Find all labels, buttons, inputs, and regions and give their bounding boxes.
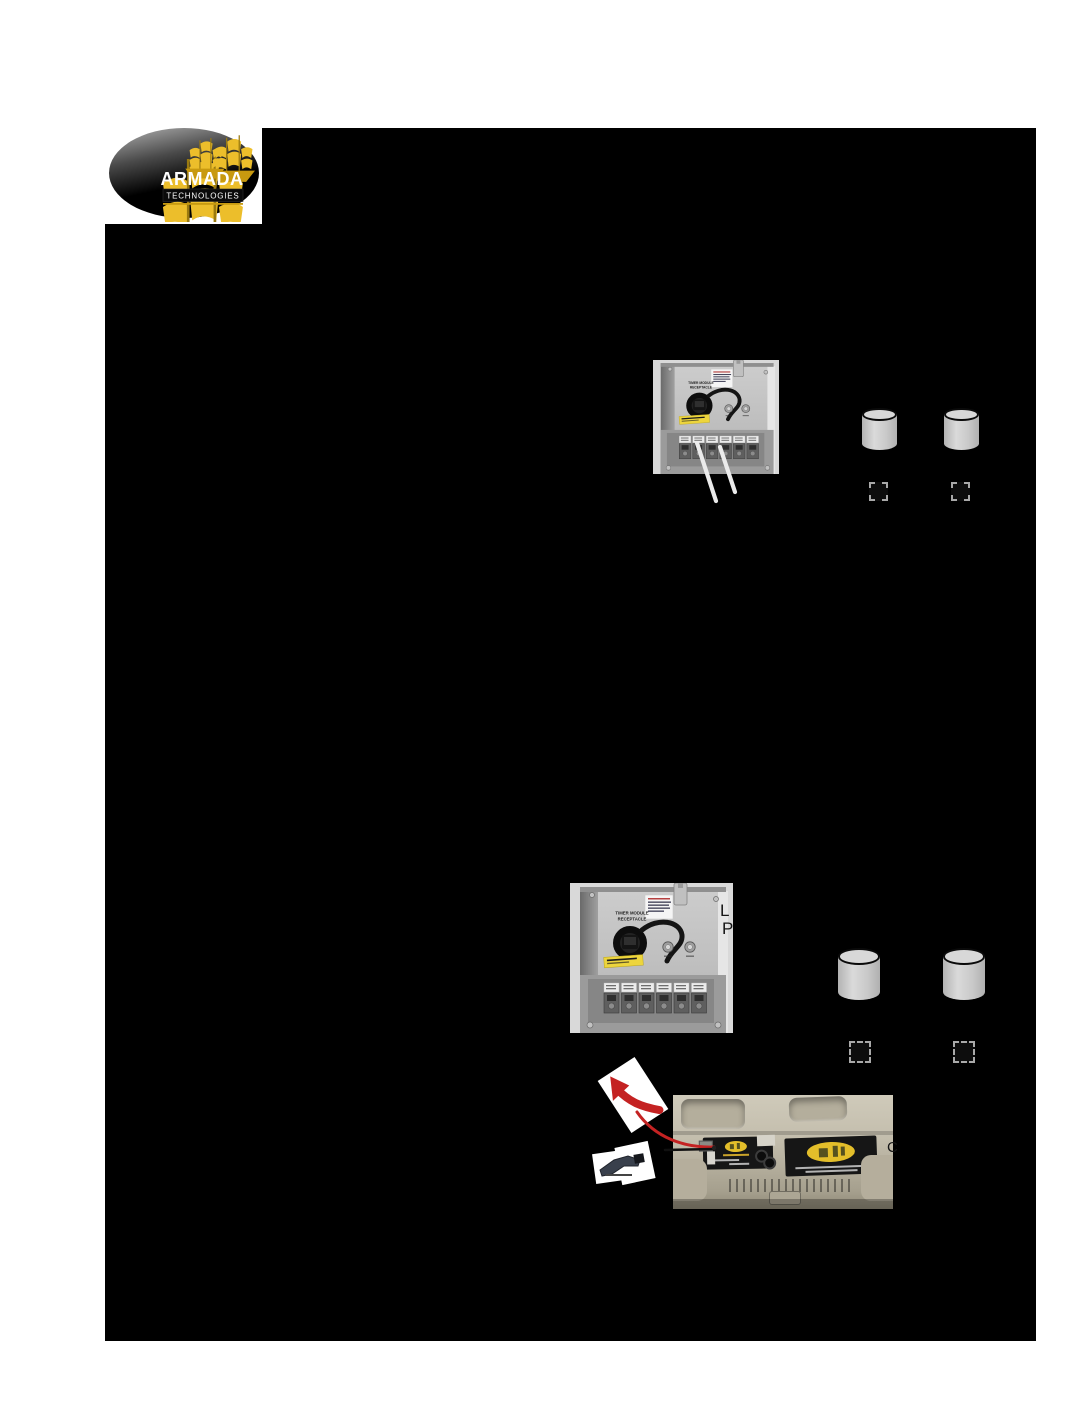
case-hinge-line: [673, 1131, 893, 1135]
case-bumper: [861, 1155, 893, 1201]
transformer-photo-large: [570, 883, 733, 1033]
armada-logo: ARMADA TECHNOLOGIES: [107, 125, 262, 222]
checkbox-group1-right[interactable]: [951, 482, 970, 501]
manual-page: TIMER MODULE RECEPTACLE: [0, 0, 1088, 1408]
battery-cylinder: [862, 408, 897, 450]
case-bottom-shadow: [673, 1199, 893, 1209]
device-connector: [699, 1140, 713, 1151]
checkbox-group1-left[interactable]: [869, 482, 888, 501]
battery-clip-icon: [594, 1144, 656, 1190]
case-lid-recess: [681, 1099, 745, 1129]
device-text-smudge: [806, 1169, 858, 1173]
device-knob[interactable]: [763, 1156, 776, 1169]
text-fragment-l: L: [720, 901, 729, 921]
checkbox-group2-right[interactable]: [953, 1041, 975, 1063]
case-bumper: [673, 1159, 707, 1201]
logo-subtitle-text: TECHNOLOGIES: [166, 192, 239, 201]
device-logo-icon: [807, 1141, 856, 1163]
cylinder-top-icon: [838, 948, 880, 965]
battery-cylinder: [943, 948, 985, 1000]
battery-cylinder: [838, 948, 880, 1000]
battery-clip-cutout: [594, 1144, 656, 1190]
wire-leads-icon: [640, 435, 760, 510]
device-connector-white: [707, 1151, 715, 1164]
redacted-block-top: [262, 128, 1036, 224]
battery-cylinder: [944, 408, 979, 450]
logo-brand-text: ARMADA: [161, 169, 244, 189]
device-text-smudge: [729, 1163, 749, 1165]
text-fragment-c: C: [887, 1139, 898, 1156]
checkbox-group2-left[interactable]: [849, 1041, 871, 1063]
redacted-block-main: [105, 224, 1036, 1341]
cylinder-top-icon: [943, 948, 985, 965]
device-gold-line: [723, 1154, 749, 1156]
device-meter-sticker: [757, 1135, 775, 1147]
device-logo-icon: [725, 1141, 747, 1152]
text-fragment-p: P: [722, 919, 733, 939]
carrying-case-photo: [673, 1095, 893, 1209]
case-lid-recess: [789, 1096, 848, 1122]
